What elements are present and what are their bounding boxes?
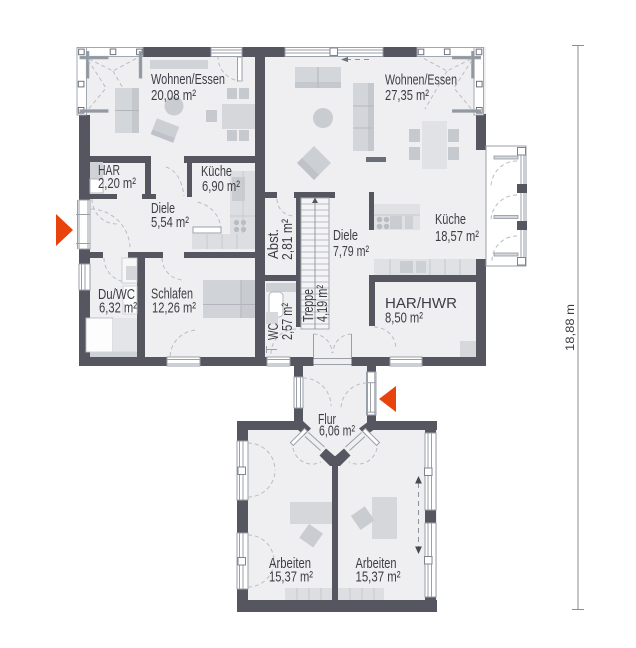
- svg-text:6,90 m²: 6,90 m²: [202, 178, 240, 195]
- svg-text:2,20 m²: 2,20 m²: [98, 175, 136, 192]
- svg-text:6,32 m²: 6,32 m²: [99, 300, 137, 317]
- svg-text:2,57 m²: 2,57 m²: [279, 303, 296, 340]
- svg-text:20,08 m²: 20,08 m²: [151, 87, 196, 104]
- svg-text:6,06 m²: 6,06 m²: [319, 423, 355, 440]
- svg-text:18,57 m²: 18,57 m²: [435, 228, 479, 245]
- svg-text:15,37 m²: 15,37 m²: [269, 569, 313, 586]
- svg-text:4,19 m²: 4,19 m²: [314, 285, 331, 322]
- svg-text:12,26 m²: 12,26 m²: [152, 300, 196, 317]
- svg-text:8,50 m²: 8,50 m²: [385, 310, 423, 327]
- svg-text:Küche: Küche: [435, 211, 466, 228]
- svg-text:15,37 m²: 15,37 m²: [356, 569, 401, 586]
- svg-text:Wohnen/Essen: Wohnen/Essen: [151, 71, 225, 88]
- svg-text:Diele: Diele: [333, 227, 358, 244]
- svg-text:18,88 m: 18,88 m: [563, 304, 577, 351]
- svg-text:5,54 m²: 5,54 m²: [151, 214, 189, 231]
- svg-text:Wohnen/Essen: Wohnen/Essen: [385, 72, 457, 89]
- svg-text:2,81 m²: 2,81 m²: [279, 219, 296, 260]
- svg-text:27,35 m²: 27,35 m²: [385, 87, 429, 104]
- svg-text:7,79 m²: 7,79 m²: [333, 243, 369, 260]
